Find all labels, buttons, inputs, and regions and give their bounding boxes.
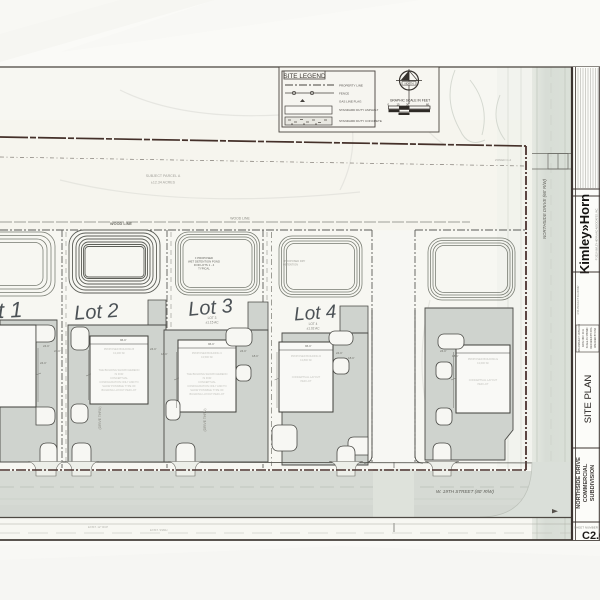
svg-text:C2.0: C2.0 bbox=[582, 530, 600, 542]
svg-text:±12.34 ACRES: ±12.34 ACRES bbox=[151, 181, 176, 185]
svg-text:LOT 4: LOT 4 bbox=[309, 322, 318, 326]
svg-text:±4,200 SF: ±4,200 SF bbox=[113, 351, 125, 355]
svg-text:PROPOSED BUILDING C: PROPOSED BUILDING C bbox=[192, 351, 222, 355]
svg-text:CONCEPTUAL LAYOUT: CONCEPTUAL LAYOUT bbox=[469, 378, 498, 382]
svg-text:(DRIVE THRU): (DRIVE THRU) bbox=[98, 407, 102, 430]
svg-text:PER LOT: PER LOT bbox=[477, 382, 489, 386]
svg-text:24.0': 24.0' bbox=[150, 347, 157, 351]
svg-text:THE BUILDING SHOWN HEREON: THE BUILDING SHOWN HEREON bbox=[99, 368, 140, 372]
svg-text:KHA PROJECT 011234567: KHA PROJECT 011234567 bbox=[577, 285, 580, 315]
svg-text:18.0': 18.0' bbox=[452, 354, 459, 358]
svg-text:DESIGNED BY KHA: DESIGNED BY KHA bbox=[590, 327, 593, 348]
svg-text:18.0': 18.0' bbox=[348, 356, 355, 360]
svg-text:±4,600 SF: ±4,600 SF bbox=[477, 361, 489, 365]
svg-text:SHEET NUMBER: SHEET NUMBER bbox=[574, 526, 599, 530]
svg-text:24.0': 24.0' bbox=[336, 351, 343, 355]
svg-text:PROPERTY LINE: PROPERTY LINE bbox=[339, 84, 363, 88]
svg-text:SHOW POSSIBLE TYPE OF: SHOW POSSIBLE TYPE OF bbox=[102, 384, 136, 388]
svg-text:±4,500 SF: ±4,500 SF bbox=[201, 355, 213, 359]
svg-text:Lot 2: Lot 2 bbox=[73, 300, 119, 325]
svg-text:SCALE AS SHOWN: SCALE AS SHOWN bbox=[586, 327, 589, 348]
svg-text:WOOD LINE: WOOD LINE bbox=[230, 217, 250, 221]
svg-text:IS FOR: IS FOR bbox=[203, 376, 212, 380]
svg-text:24.0': 24.0' bbox=[43, 344, 50, 348]
svg-text:Kimley»Horn: Kimley»Horn bbox=[577, 194, 592, 274]
svg-text:FENCE: FENCE bbox=[339, 92, 349, 96]
svg-text:t 1: t 1 bbox=[0, 297, 23, 323]
svg-text:GAS LINE FLAG: GAS LINE FLAG bbox=[339, 100, 362, 104]
svg-text:SHOW POSSIBLE TYPE OF: SHOW POSSIBLE TYPE OF bbox=[190, 388, 224, 392]
svg-text:BUILDING LAYOUT PER LOT: BUILDING LAYOUT PER LOT bbox=[190, 392, 225, 396]
svg-text:WOOD LINE: WOOD LINE bbox=[110, 222, 132, 226]
svg-text:96.0': 96.0' bbox=[305, 344, 312, 348]
svg-text:24.0': 24.0' bbox=[440, 349, 447, 353]
svg-text:24.0': 24.0' bbox=[54, 349, 61, 353]
svg-text:EXIST. 12" RCP: EXIST. 12" RCP bbox=[88, 525, 108, 529]
svg-text:DATE NOV. 2019: DATE NOV. 2019 bbox=[582, 328, 585, 346]
svg-text:CONCEPTUAL: CONCEPTUAL bbox=[110, 376, 128, 380]
svg-text:±1.02 AC: ±1.02 AC bbox=[306, 327, 320, 331]
svg-text:±PROPOSED DRY: ±PROPOSED DRY bbox=[283, 259, 306, 263]
svg-text:CONFIGURATION ONLY AND TO: CONFIGURATION ONLY AND TO bbox=[187, 384, 226, 388]
svg-text:SUBDIVISION: SUBDIVISION bbox=[590, 465, 596, 501]
svg-text:PER LOT: PER LOT bbox=[300, 379, 312, 383]
svg-text:IS FOR: IS FOR bbox=[115, 372, 124, 376]
svg-text:STANDARD DUTY CONCRETE: STANDARD DUTY CONCRETE bbox=[339, 119, 382, 123]
svg-text:© 2019 KIMLEY-HORN AND ASSOCIA: © 2019 KIMLEY-HORN AND ASSOCIATES, INC. bbox=[596, 208, 599, 260]
svg-text:COMMERCIAL: COMMERCIAL bbox=[583, 463, 589, 502]
svg-text:PROPOSED BUILDING D: PROPOSED BUILDING D bbox=[291, 354, 321, 358]
svg-text:NORTHSIDE DRIVE: NORTHSIDE DRIVE bbox=[576, 457, 582, 509]
svg-text:DETENTION: DETENTION bbox=[283, 263, 298, 267]
svg-text:96.0': 96.0' bbox=[208, 342, 215, 346]
svg-text:18.0': 18.0' bbox=[161, 352, 168, 356]
svg-text:PROPOSED BUILDING E: PROPOSED BUILDING E bbox=[468, 357, 498, 361]
svg-text:EXIST. SSMH: EXIST. SSMH bbox=[150, 528, 167, 532]
svg-text:PROPOSED BUILDING B: PROPOSED BUILDING B bbox=[104, 347, 134, 351]
svg-text:NORTHSIDE DRIVE (66' R/W): NORTHSIDE DRIVE (66' R/W) bbox=[542, 178, 547, 239]
svg-text:THE BUILDING SHOWN HEREON: THE BUILDING SHOWN HEREON bbox=[187, 372, 228, 376]
svg-text:18.0': 18.0' bbox=[252, 354, 259, 358]
svg-text:24.0': 24.0' bbox=[240, 349, 247, 353]
svg-text:CONFIGURATION ONLY AND TO: CONFIGURATION ONLY AND TO bbox=[99, 380, 138, 384]
svg-text:CHECKED BY KHA: CHECKED BY KHA bbox=[594, 327, 597, 348]
svg-text:BUILDING LAYOUT PER LOT: BUILDING LAYOUT PER LOT bbox=[102, 388, 137, 392]
svg-text:TYPICAL: TYPICAL bbox=[198, 267, 210, 271]
svg-text:STANDARD DUTY ASPHALT: STANDARD DUTY ASPHALT bbox=[339, 108, 379, 112]
svg-text:NORTH: NORTH bbox=[405, 82, 414, 85]
svg-text:±4,800 SF: ±4,800 SF bbox=[300, 358, 312, 362]
svg-text:(DRIVE THRU): (DRIVE THRU) bbox=[203, 409, 207, 432]
svg-text:SUBJECT PARCEL A: SUBJECT PARCEL A bbox=[146, 174, 181, 178]
svg-text:SITE LEGEND: SITE LEGEND bbox=[283, 73, 326, 80]
svg-text:LOT 3: LOT 3 bbox=[208, 316, 217, 320]
svg-text:W. 19TH STREET (80' R/W): W. 19TH STREET (80' R/W) bbox=[436, 489, 494, 494]
svg-text:CONCEPTUAL: CONCEPTUAL bbox=[198, 380, 216, 384]
svg-text:24.0': 24.0' bbox=[40, 361, 47, 365]
svg-text:ZONED C-2: ZONED C-2 bbox=[495, 158, 511, 162]
svg-text:±1.15 AC: ±1.15 AC bbox=[205, 321, 219, 325]
svg-text:CONCEPTUAL LAYOUT: CONCEPTUAL LAYOUT bbox=[292, 375, 321, 379]
svg-text:SITE PLAN: SITE PLAN bbox=[583, 375, 594, 424]
svg-text:96.0': 96.0' bbox=[120, 338, 127, 342]
svg-text:KHA PROJECT 160591000: KHA PROJECT 160591000 bbox=[578, 323, 581, 352]
